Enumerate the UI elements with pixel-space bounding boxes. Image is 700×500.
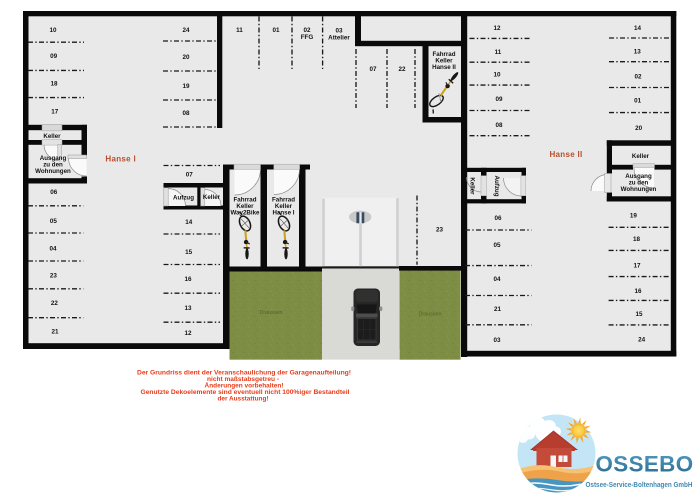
svg-text:09: 09 (50, 53, 58, 60)
svg-text:15: 15 (635, 311, 643, 318)
svg-text:06: 06 (50, 189, 58, 196)
svg-text:05: 05 (50, 218, 58, 225)
svg-text:14: 14 (634, 25, 642, 32)
svg-text:01: 01 (634, 97, 642, 104)
svg-text:17: 17 (633, 263, 641, 270)
svg-text:Hanse I: Hanse I (105, 155, 136, 164)
svg-text:10: 10 (49, 27, 57, 34)
svg-text:18: 18 (633, 236, 641, 243)
svg-text:12: 12 (184, 330, 192, 337)
svg-text:01: 01 (272, 27, 280, 34)
svg-text:Keller: Keller (43, 133, 61, 140)
svg-text:22: 22 (398, 66, 406, 73)
svg-text:FFG: FFG (301, 34, 314, 41)
svg-text:14: 14 (185, 219, 193, 226)
svg-text:13: 13 (184, 305, 192, 312)
svg-text:07: 07 (186, 172, 194, 179)
svg-text:08: 08 (182, 110, 190, 117)
svg-text:04: 04 (49, 246, 57, 253)
svg-text:OSSEBO: OSSEBO (596, 452, 694, 477)
svg-text:Wohnungen: Wohnungen (35, 168, 71, 175)
svg-text:Aufzug: Aufzug (173, 195, 194, 202)
svg-text:06: 06 (494, 215, 502, 222)
svg-text:19: 19 (182, 83, 190, 90)
svg-text:17: 17 (51, 109, 59, 116)
svg-text:23: 23 (436, 227, 444, 234)
svg-text:Draussen: Draussen (259, 310, 282, 316)
svg-text:21: 21 (51, 329, 59, 336)
svg-text:Ostsee-Service-Boltenhagen Gmb: Ostsee-Service-Boltenhagen GmbH (586, 480, 693, 489)
svg-text:Hanse II: Hanse II (549, 150, 582, 159)
svg-text:24: 24 (638, 337, 646, 344)
svg-text:09: 09 (495, 96, 503, 103)
svg-text:11: 11 (236, 27, 243, 34)
svg-text:15: 15 (185, 249, 193, 256)
svg-text:Keller: Keller (632, 153, 650, 160)
svg-text:23: 23 (50, 273, 58, 280)
svg-text:Attelier: Attelier (328, 34, 350, 41)
svg-text:11: 11 (495, 49, 502, 56)
svg-text:Draussen: Draussen (418, 312, 441, 318)
svg-text:05: 05 (493, 242, 501, 249)
svg-text:Keller: Keller (203, 194, 221, 201)
svg-text:der Ausstattung!: der Ausstattung! (218, 396, 269, 403)
svg-text:13: 13 (634, 48, 642, 55)
svg-text:20: 20 (635, 125, 643, 132)
svg-text:07: 07 (369, 66, 377, 73)
svg-text:Hanse I: Hanse I (272, 210, 294, 217)
svg-text:08: 08 (495, 122, 503, 129)
svg-text:24: 24 (182, 27, 190, 34)
svg-text:04: 04 (493, 276, 501, 283)
svg-text:12: 12 (493, 25, 501, 32)
svg-text:Way2Bike: Way2Bike (230, 210, 260, 217)
svg-text:03: 03 (493, 337, 501, 344)
svg-text:18: 18 (50, 81, 58, 88)
svg-text:21: 21 (494, 306, 502, 313)
svg-text:20: 20 (182, 54, 190, 61)
svg-text:19: 19 (630, 213, 638, 220)
svg-text:Keller: Keller (468, 177, 475, 195)
svg-text:02: 02 (634, 74, 642, 81)
svg-text:10: 10 (493, 72, 501, 79)
svg-text:16: 16 (634, 288, 642, 295)
svg-text:Wohnungen: Wohnungen (621, 186, 657, 193)
svg-text:Hanse II: Hanse II (432, 64, 456, 71)
svg-text:16: 16 (184, 276, 192, 283)
svg-text:Aufzug: Aufzug (493, 176, 500, 197)
svg-text:22: 22 (51, 300, 59, 307)
